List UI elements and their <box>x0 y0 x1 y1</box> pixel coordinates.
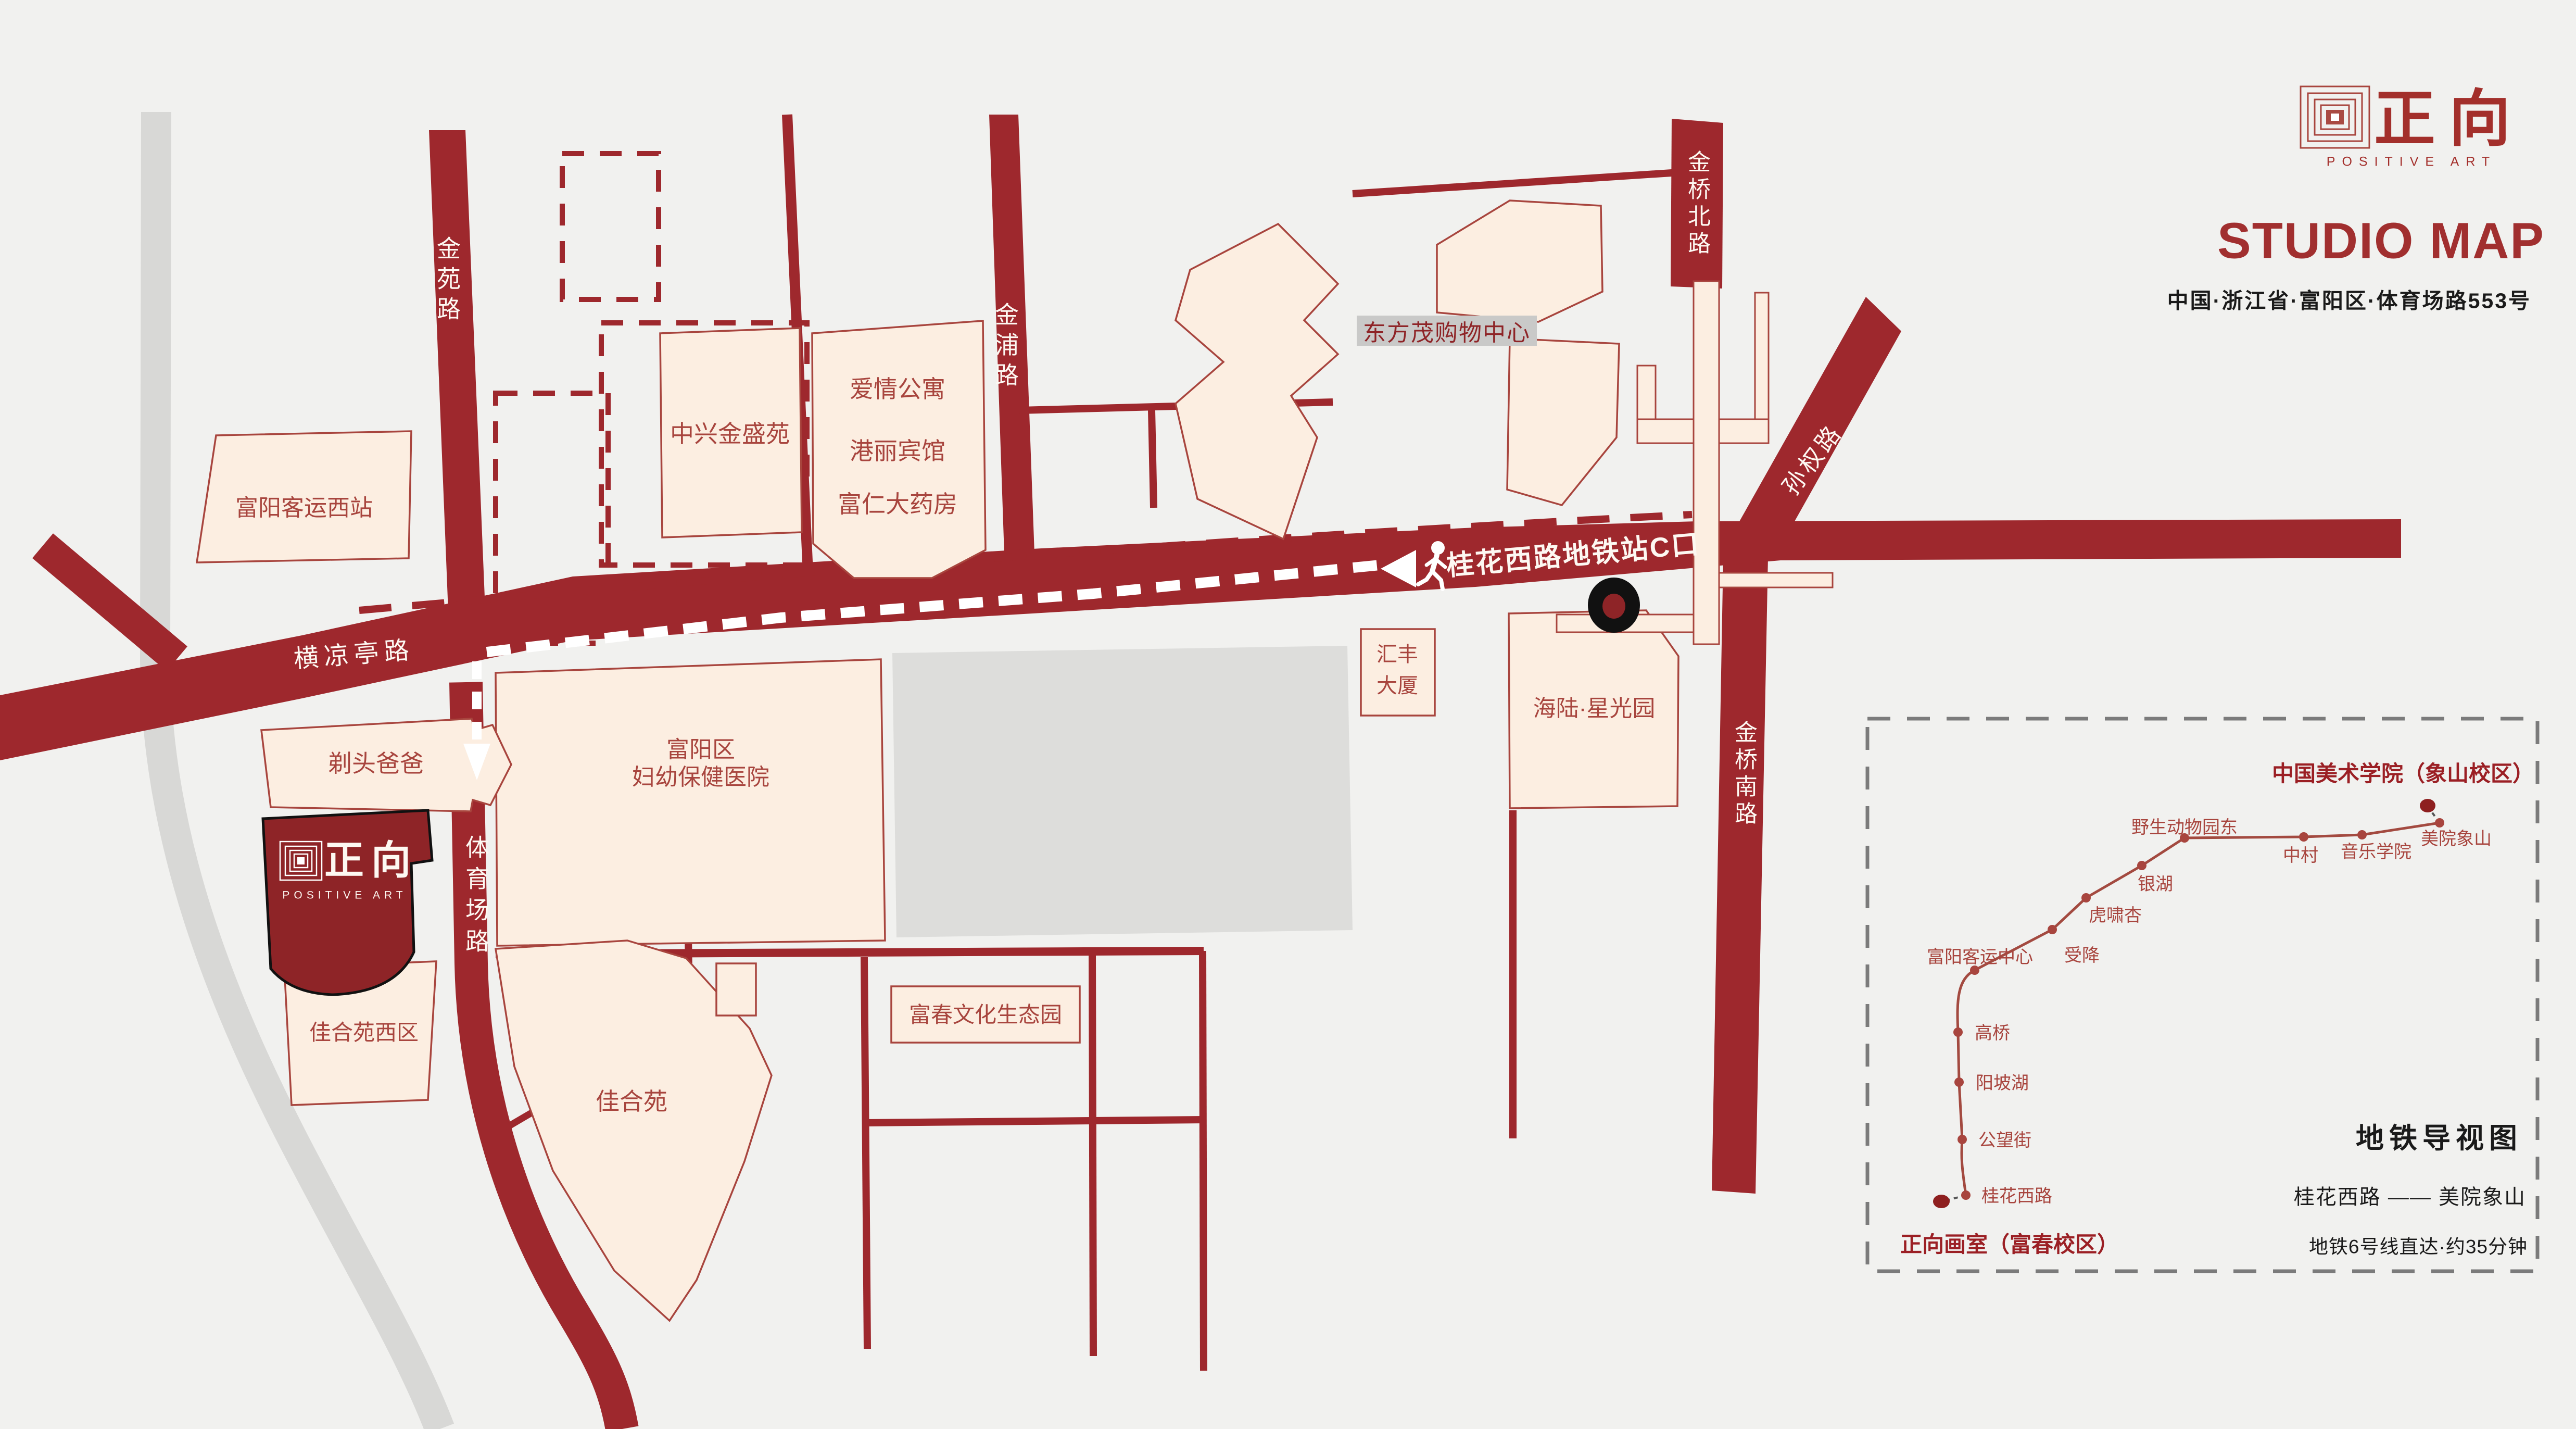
station-label-yangpohu: 阳坡湖 <box>1976 1074 2029 1092</box>
road-jinqiao-south <box>1712 557 1768 1194</box>
metro-station-dot <box>2081 893 2091 902</box>
station-label-meiyuanxiangshan: 美院象山 <box>2421 830 2492 848</box>
metro-terminal-dot-academy <box>2420 799 2435 812</box>
station-label-gongwangjie: 公望街 <box>1978 1132 2031 1149</box>
building-mall-north <box>1437 200 1602 322</box>
station-label-gaoqiao: 高桥 <box>1975 1024 2010 1042</box>
road-label-jinqiao-south: 金桥南路 <box>1732 720 1755 829</box>
metro-station-dot <box>1953 1027 1963 1037</box>
road-jinyuan <box>429 130 486 625</box>
station-label-shoujiang: 受降 <box>2064 947 2100 964</box>
road-thin-t3-stub <box>1152 410 1154 508</box>
dashed-block-3 <box>562 154 659 299</box>
gray-block <box>892 646 1353 937</box>
label-hailu: 海陆·星光园 <box>1533 697 1656 720</box>
metro-station-dot <box>2435 818 2444 828</box>
station-exit-marker-core <box>1602 594 1625 619</box>
building-small-south <box>716 963 756 1016</box>
metro-station-dot <box>1961 1190 1971 1200</box>
metro-station-dot <box>2137 861 2146 870</box>
page-title: STUDIO MAP <box>2217 216 2545 266</box>
station-bar-east <box>1719 573 1833 587</box>
metro-station-dot <box>1958 1135 1967 1144</box>
label-hospital-1: 富阳区 <box>666 738 735 761</box>
station-label-yeshengdongwuyuandong: 野生动物园东 <box>2131 819 2238 836</box>
road-thin-b <box>864 957 867 1349</box>
station-label-keyunzhongxin: 富阳客运中心 <box>1927 948 2033 966</box>
road-thin-c <box>1092 951 1093 1356</box>
label-jiahe-west: 佳合苑西区 <box>309 1022 419 1044</box>
inset-note: 地铁6号线直达·约35分钟 <box>2309 1237 2528 1257</box>
studio-brand-en: POSITIVE ART <box>282 890 407 901</box>
label-apartment: 爱情公寓 <box>850 377 945 401</box>
inset-title: 地铁导视图 <box>2356 1124 2522 1152</box>
inset-route-line: 桂花西路 —— 美院象山 <box>2294 1187 2526 1208</box>
road-thin-d <box>865 1120 1204 1123</box>
label-jiahe: 佳合苑 <box>596 1089 667 1113</box>
brand-name-cn: 正向 <box>2374 88 2524 149</box>
building-hospital <box>496 659 885 946</box>
building-huifeng <box>1361 629 1435 716</box>
building-mall-west <box>1176 224 1338 539</box>
metro-terminal-dot-studio <box>1933 1195 1950 1208</box>
label-barber: 剃头爸爸 <box>328 751 424 775</box>
label-huifeng-1: 汇丰 <box>1377 644 1418 665</box>
road-label-jinpu: 金浦路 <box>993 302 1017 393</box>
metro-station-dot <box>1954 1077 1964 1087</box>
brand-logo-icon <box>2301 86 2369 148</box>
label-hospital-2: 妇幼保健医院 <box>632 766 769 789</box>
road-thin-e <box>1203 951 1204 1371</box>
label-mall: 东方茂购物中心 <box>1363 314 1531 347</box>
label-zhongxing: 中兴金盛苑 <box>670 422 790 446</box>
road-label-tiyuchang: 体育场路 <box>464 835 488 960</box>
station-label-huxiaoxing: 虎啸杏 <box>2089 907 2142 924</box>
road-thin-t2 <box>1353 173 1672 194</box>
metro-station-dot <box>2048 925 2057 934</box>
label-fuchun-park: 富春文化生态园 <box>909 1004 1062 1026</box>
building-mall-east <box>1507 339 1619 505</box>
studio-brand-cn: 正向 <box>324 841 418 880</box>
road-label-jinqiao-north: 金桥北路 <box>1685 150 1708 258</box>
brand-name-en: POSITIVE ART <box>2327 156 2496 169</box>
label-huifeng-2: 大厦 <box>1377 675 1418 696</box>
station-band-vertical <box>1694 281 1719 644</box>
station-label-guihuaxilu: 桂花西路 <box>1981 1187 2052 1205</box>
label-mall-badge: 东方茂购物中心 <box>1357 316 1537 346</box>
station-label-zhongcun: 中村 <box>2283 847 2318 864</box>
station-stub-right <box>1755 293 1769 436</box>
road-label-jinyuan: 金苑路 <box>435 236 459 327</box>
metro-station-dot <box>2299 832 2308 842</box>
studio-map-poster: 正向 POSITIVE ART STUDIO MAP 中国·浙江省·富阳区·体育… <box>0 0 2576 1429</box>
inset-endpoint-academy: 中国美术学院（象山校区） <box>2272 763 2534 785</box>
label-bus-station-west: 富阳客运西站 <box>235 497 373 520</box>
address-line: 中国·浙江省·富阳区·体育场路553号 <box>2167 291 2531 312</box>
label-hotel: 港丽宾馆 <box>850 439 945 463</box>
station-label-yinhu: 银湖 <box>2138 875 2173 893</box>
station-label-yinyuexueyuan: 音乐学院 <box>2341 843 2411 861</box>
metro-station-dot <box>2357 830 2367 839</box>
inset-endpoint-studio: 正向画室（富春校区） <box>1900 1234 2119 1256</box>
label-pharmacy: 富仁大药房 <box>838 492 957 516</box>
